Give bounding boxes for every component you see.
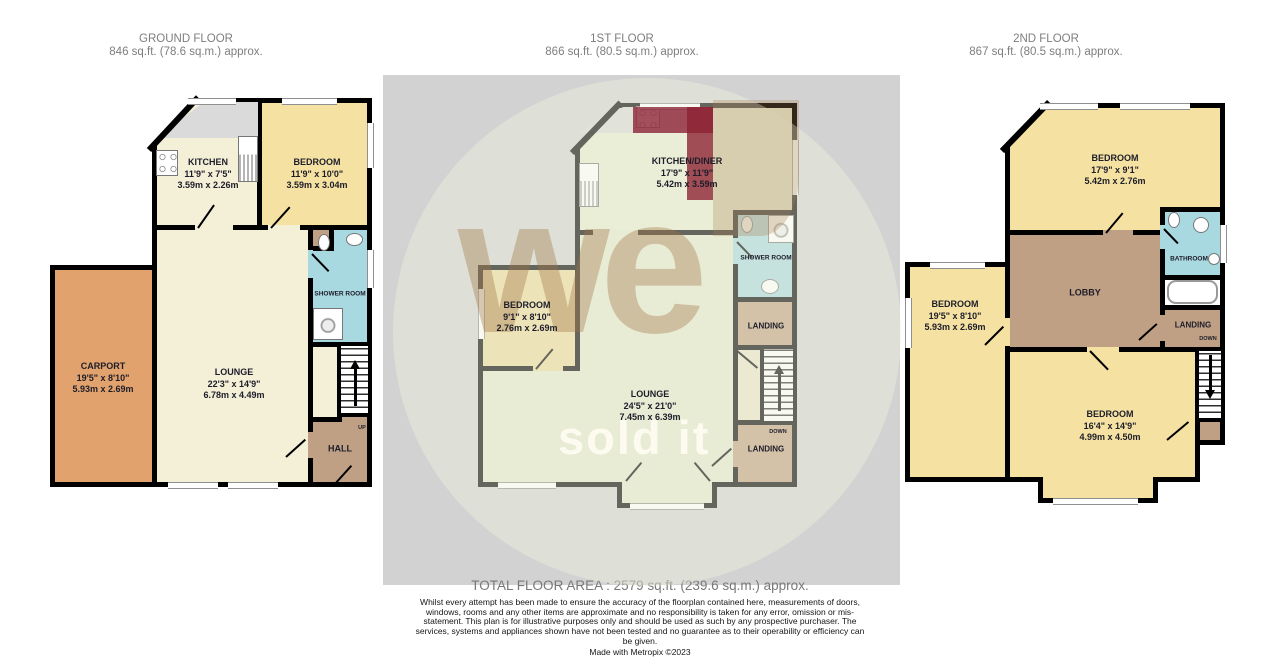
gf-up-label: UP	[358, 425, 366, 431]
gf-kitchen-imperial: 11'9" x 7'5"	[177, 168, 238, 180]
ff-lounge-metric: 7.45m x 6.39m	[619, 412, 680, 424]
sf-window-bedleft-top	[930, 262, 985, 269]
gf-kitchen-label: KITCHEN 11'9" x 7'5" 3.59m x 2.26m	[177, 157, 238, 192]
sf-sink-icon	[1193, 217, 1209, 233]
ff-kitchen-metric: 5.42m x 3.59m	[652, 179, 723, 191]
ff-bay-seam	[622, 480, 712, 488]
gf-window-bedroom-right	[367, 123, 374, 168]
ff-fridge-icon	[579, 163, 599, 207]
ff-bedroom-label: BEDROOM 9'1" x 8'10" 2.76m x 2.69m	[496, 300, 557, 335]
first-floor-area: 866 sq.ft. (80.5 sq.m.) approx.	[472, 46, 772, 59]
ff-landing-doorway	[733, 441, 738, 467]
ff-landing-upper-label: LANDING	[748, 323, 784, 330]
sf-down-label: DOWN	[1199, 336, 1216, 342]
sf-bedtop-imperial: 17'9" x 9'1"	[1084, 164, 1145, 176]
gf-arrow-head	[350, 360, 360, 369]
sf-bedleft-name: BEDROOM	[924, 299, 985, 311]
ff-landing-lower-label: LANDING	[748, 446, 784, 453]
ff-window-bay	[630, 503, 704, 510]
ff-bedroom-name: BEDROOM	[496, 300, 557, 312]
gf-window-kitchen-top	[188, 98, 236, 105]
ff-arrow-head	[774, 365, 784, 374]
ff-kitchen-opening	[593, 230, 638, 235]
sf-bathtub-icon	[1167, 280, 1218, 304]
gf-lounge-label: LOUNGE 22'3" x 14'9" 6.78m x 4.49m	[203, 367, 264, 402]
sf-stairs-down-arrow-icon	[1205, 355, 1215, 399]
second-floor-plan: BEDROOM 17'9" x 9'1" 5.42m x 2.76m BATHR…	[905, 103, 1227, 505]
gf-bedroom-name: BEDROOM	[286, 157, 347, 169]
gf-carport-imperial: 19'5" x 8'10"	[72, 372, 133, 384]
ground-floor-header: GROUND FLOOR 846 sq.ft. (78.6 sq.m.) app…	[36, 33, 336, 59]
gf-carport-label: CARPORT 19'5" x 8'10" 5.93m x 2.69m	[72, 361, 133, 396]
ff-toilet-icon	[741, 216, 753, 233]
ff-bedroom-imperial: 9'1" x 8'10"	[496, 311, 557, 323]
sf-window-bedleft-left	[905, 298, 912, 348]
gf-bedroom-label: BEDROOM 11'9" x 10'0" 3.59m x 3.04m	[286, 157, 347, 192]
sf-landing-label: LANDING	[1175, 322, 1211, 329]
gf-kitchen-name: KITCHEN	[177, 157, 238, 169]
sf-bedroom-left-room	[905, 262, 1010, 482]
sf-window-top1	[1040, 103, 1098, 110]
ff-lounge-seam	[580, 361, 733, 376]
gf-kitchen-metric: 3.59m x 2.26m	[177, 180, 238, 192]
gf-shower-tray-icon	[313, 308, 343, 340]
ff-kitchen-imperial: 17'9" x 11'9"	[652, 167, 723, 179]
sf-bedleft-metric: 5.93m x 2.69m	[924, 322, 985, 334]
made-with-credit: Made with Metropix ©2023	[0, 647, 1280, 657]
gf-lounge-imperial: 22'3" x 14'9"	[203, 378, 264, 390]
ff-sink-icon	[761, 279, 779, 294]
ff-stairs-up-arrow-icon	[774, 365, 784, 411]
second-floor-area: 867 sq.ft. (80.5 sq.m.) approx.	[896, 46, 1196, 59]
second-floor-title: 2ND FLOOR	[896, 33, 1196, 46]
gf-sink-icon	[346, 233, 363, 246]
ff-kitchen-name: KITCHEN/DINER	[652, 156, 723, 168]
sf-bedbottom-imperial: 16'4" x 14'9"	[1079, 420, 1140, 432]
ff-down-label: DOWN	[769, 429, 786, 435]
second-floor-header: 2ND FLOOR 867 sq.ft. (80.5 sq.m.) approx…	[896, 33, 1196, 59]
sf-basin-icon	[1208, 253, 1220, 265]
ff-lounge-label: LOUNGE 24'5" x 21'0" 7.45m x 6.39m	[619, 389, 680, 424]
ff-window-kitchen-top	[640, 103, 700, 110]
sf-toilet-icon	[1168, 212, 1180, 228]
gf-fridge-icon	[238, 136, 258, 182]
gf-lounge-room	[152, 225, 313, 487]
sf-bedbottom-name: BEDROOM	[1079, 409, 1140, 421]
total-floor-area: TOTAL FLOOR AREA : 2579 sq.ft. (239.6 sq…	[0, 578, 1280, 593]
ff-bedroom-metric: 2.76m x 2.69m	[496, 323, 557, 335]
gf-hall-doorway	[308, 432, 313, 458]
sf-bedroom-bottom-label: BEDROOM 16'4" x 14'9" 4.99m x 4.50m	[1079, 409, 1140, 444]
sf-lobby-label: LOBBY	[1069, 287, 1101, 299]
sf-landing-doorway	[1160, 315, 1165, 341]
sf-bedtop-metric: 5.42m x 2.76m	[1084, 176, 1145, 188]
gf-carport-metric: 5.93m x 2.69m	[72, 384, 133, 396]
ff-shower-label: SHOWER ROOM	[740, 255, 791, 262]
sf-bedroom-top-label: BEDROOM 17'9" x 9'1" 5.42m x 2.76m	[1084, 153, 1145, 188]
gf-stove-icon	[156, 150, 178, 176]
first-floor-title: 1ST FLOOR	[472, 33, 772, 46]
gf-bedroom-imperial: 11'9" x 10'0"	[286, 168, 347, 180]
disclaimer-text: Whilst every attempt has been made to en…	[414, 598, 866, 647]
gf-shower-label: SHOWER ROOM	[314, 291, 365, 298]
gf-window-lounge-bottom1	[168, 482, 218, 489]
ff-landing-lower-room	[733, 420, 797, 487]
sf-window-top2	[1120, 103, 1190, 110]
ff-window-bedroom-left	[478, 289, 485, 339]
gf-window-lounge-bottom2	[228, 482, 278, 489]
sf-bedleft-doorway	[1005, 318, 1010, 346]
first-floor-plan: KITCHEN/DINER 17'9" x 11'9" 5.42m x 3.59…	[478, 103, 800, 510]
gf-toilet-icon	[318, 234, 330, 251]
sf-arrow-stem	[1209, 355, 1212, 390]
ff-lounge-imperial: 24'5" x 21'0"	[619, 400, 680, 412]
sf-bedtop-name: BEDROOM	[1084, 153, 1145, 165]
ff-lounge-name: LOUNGE	[619, 389, 680, 401]
sf-bedbottom-metric: 4.99m x 4.50m	[1079, 432, 1140, 444]
ff-kitchen-diner-label: KITCHEN/DINER 17'9" x 11'9" 5.42m x 3.59…	[652, 156, 723, 191]
ground-floor-title: GROUND FLOOR	[36, 33, 336, 46]
first-floor-header: 1ST FLOOR 866 sq.ft. (80.5 sq.m.) approx…	[472, 33, 772, 59]
sf-arrow-head	[1205, 390, 1215, 399]
ff-lounge-upper	[575, 230, 738, 371]
ff-window-kitchen-right	[792, 140, 799, 195]
sf-bedroom-left-label: BEDROOM 19'5" x 8'10" 5.93m x 2.69m	[924, 299, 985, 334]
gf-carport-name: CARPORT	[72, 361, 133, 373]
ff-window-lounge-bottom	[498, 482, 556, 489]
ff-arrow-stem	[778, 374, 781, 411]
sf-bathroom-label: BATHROOM	[1170, 256, 1208, 263]
gf-hall-label: HALL	[328, 443, 352, 455]
gf-lounge-metric: 6.78m x 4.49m	[203, 390, 264, 402]
gf-window-shower-right	[367, 250, 374, 288]
sf-bedleft-imperial: 19'5" x 8'10"	[924, 310, 985, 322]
sf-window-bathroom-right	[1220, 225, 1227, 263]
ground-floor-plan: KITCHEN 11'9" x 7'5" 3.59m x 2.26m BEDRO…	[50, 98, 375, 490]
sf-bay-seam	[1043, 475, 1153, 483]
sf-window-bay	[1053, 498, 1138, 505]
ground-floor-area: 846 sq.ft. (78.6 sq.m.) approx.	[36, 46, 336, 59]
gf-arrow-stem	[354, 369, 357, 406]
floorplan-page: GROUND FLOOR 846 sq.ft. (78.6 sq.m.) app…	[0, 0, 1280, 660]
gf-bedroom-metric: 3.59m x 3.04m	[286, 180, 347, 192]
gf-window-bedroom-top	[282, 98, 337, 105]
gf-stairs-up-arrow-icon	[350, 360, 360, 406]
gf-lounge-name: LOUNGE	[203, 367, 264, 379]
footer: TOTAL FLOOR AREA : 2579 sq.ft. (239.6 sq…	[0, 578, 1280, 657]
ff-shower-tray-icon	[768, 215, 794, 243]
